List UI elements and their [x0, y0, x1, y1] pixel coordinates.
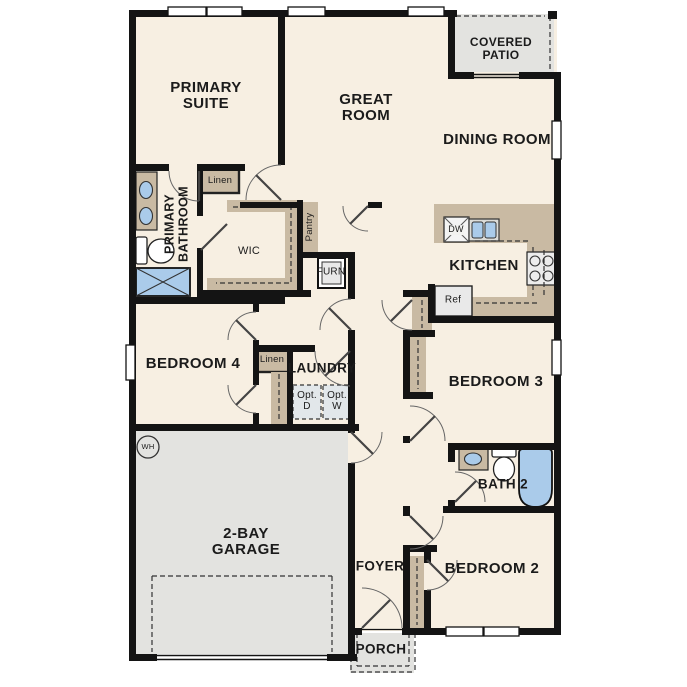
- sink-icon: [140, 182, 153, 199]
- sink-icon: [140, 208, 153, 225]
- room-label-porch: PORCH: [346, 643, 416, 658]
- kitchen-counter-bottom: [470, 297, 554, 317]
- room-label-primary-suite: PRIMARY SUITE: [146, 80, 266, 112]
- room-label-bedroom-2: BEDROOM 2: [422, 561, 562, 577]
- room-label-foyer: FOYER: [345, 560, 415, 575]
- fixture-label-furnace: FURN: [306, 268, 356, 279]
- sink-icon: [465, 453, 482, 465]
- room-label-garage: 2-BAY GARAGE: [191, 526, 301, 558]
- fixture-label-opt-dryer: Opt. D: [293, 391, 321, 413]
- fixture-label-water-heater: WH: [142, 443, 155, 451]
- room-label-primary-bathroom: PRIMARY BATHROOM: [164, 169, 191, 279]
- room-label-laundry: LAUNDRY: [277, 362, 367, 377]
- kitchen-sink-icon: [469, 219, 499, 241]
- window: [168, 7, 206, 16]
- room-label-wic: WIC: [229, 246, 269, 258]
- room-label-dining-room: DINING ROOM: [442, 132, 552, 148]
- closet-label-pantry: Pantry: [305, 205, 315, 249]
- fixture-label-opt-washer: Opt. W: [323, 391, 351, 413]
- window: [484, 627, 519, 636]
- fixture-label-refrigerator: Ref: [445, 296, 461, 307]
- room-label-covered-patio: COVERED PATIO: [456, 36, 546, 62]
- room-label-bath-2: BATH 2: [475, 478, 531, 493]
- window: [408, 7, 444, 16]
- fixture-label-dishwasher: DW: [447, 225, 464, 235]
- room-label-kitchen: KITCHEN: [434, 258, 534, 274]
- window: [552, 340, 561, 375]
- window: [288, 7, 325, 16]
- closet-label-linen-1: Linen: [200, 176, 240, 186]
- garage-door: [157, 656, 327, 660]
- room-label-bedroom-3: BEDROOM 3: [426, 374, 566, 390]
- window: [552, 121, 561, 159]
- room-label-great-room: GREAT ROOM: [321, 92, 411, 124]
- room-label-bedroom-4: BEDROOM 4: [123, 356, 263, 372]
- floor-plan: PRIMARY SUITE GREAT ROOM DINING ROOM COV…: [0, 0, 687, 687]
- window: [207, 7, 242, 16]
- window: [446, 627, 483, 636]
